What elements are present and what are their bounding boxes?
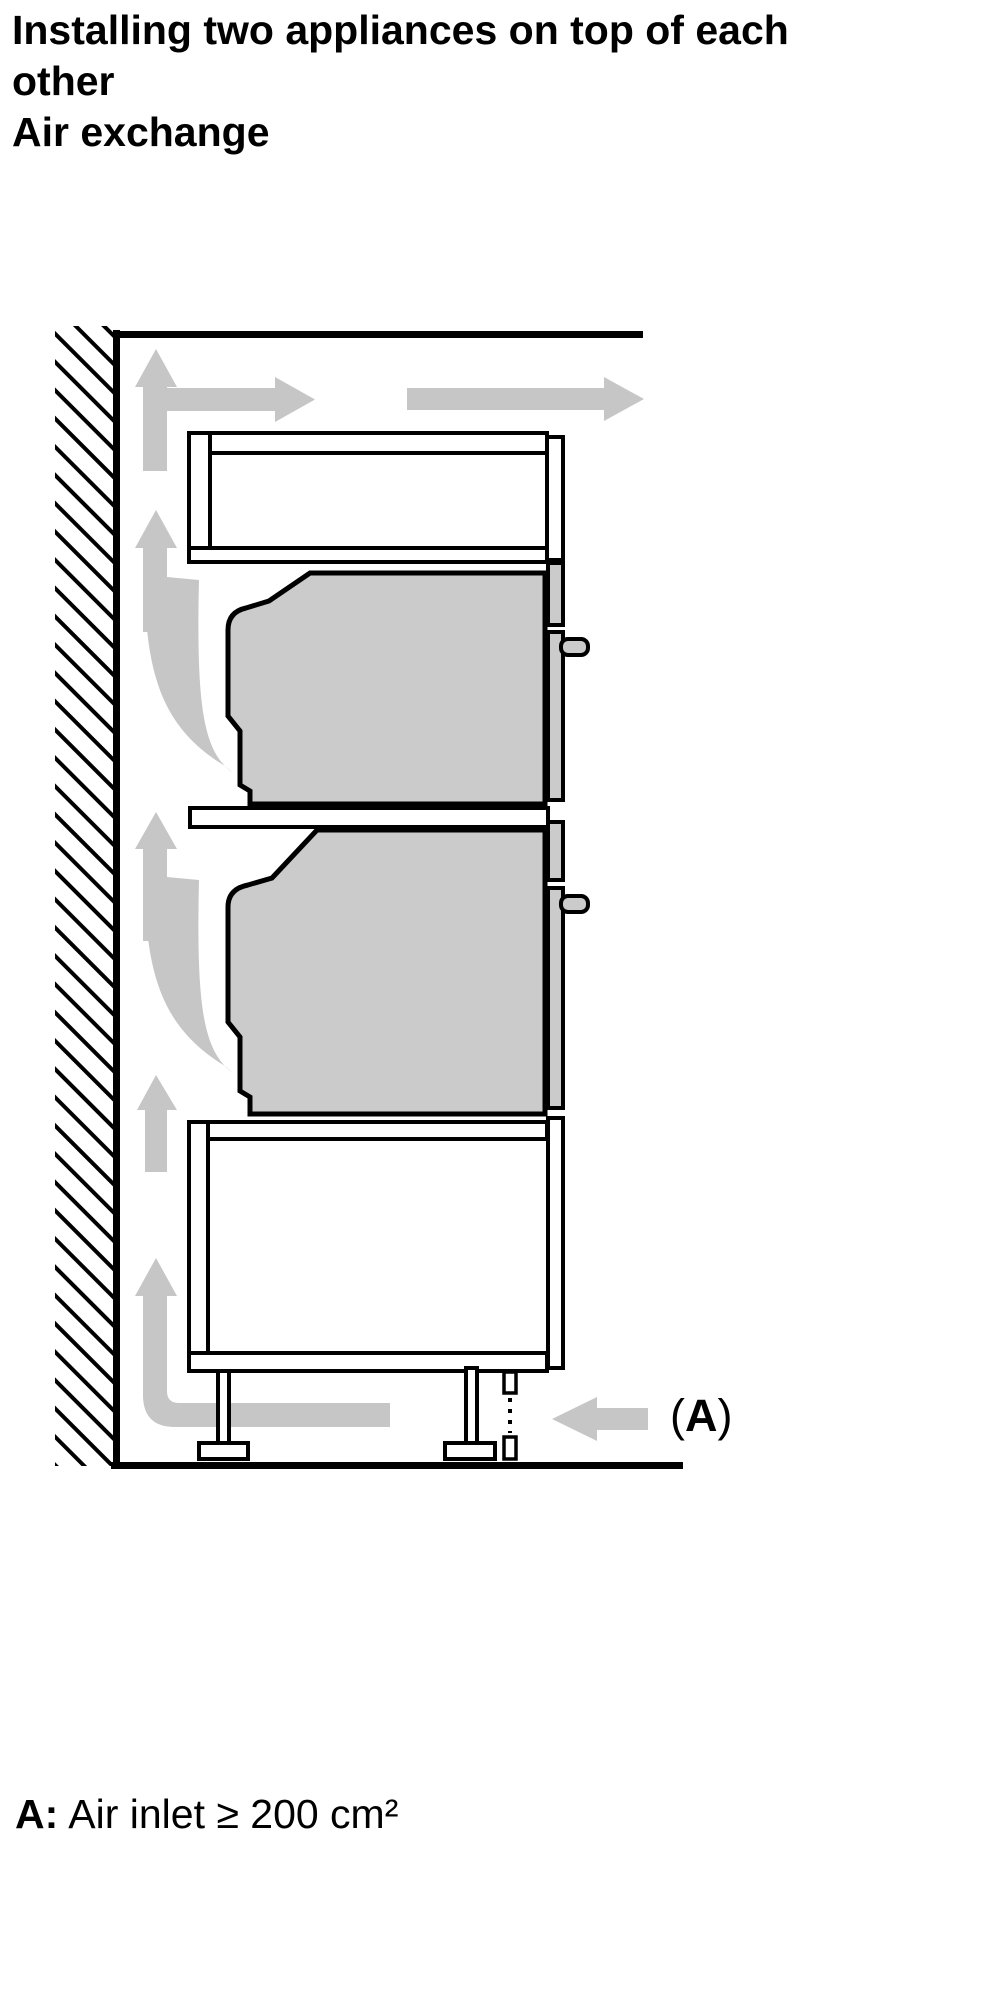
base-cabinet-top-board [189, 1122, 547, 1139]
manual-page: Installing two appliances on top of each… [0, 0, 1000, 2000]
appliance-upper [228, 563, 588, 804]
air-inlet-label: (A) [670, 1392, 733, 1440]
floor-line [111, 1462, 683, 1469]
appliance-lower [228, 822, 588, 1114]
airflow-up-arrow-lower-icon [137, 1075, 177, 1172]
top-compartment-left-board [189, 433, 210, 562]
appliance-lower-trim [548, 822, 563, 880]
airflow-floor-l-arrow-icon [135, 1258, 390, 1427]
appliance-lower-body [228, 830, 545, 1114]
air-inlet-label-open-paren: ( [670, 1390, 685, 1441]
left-foot-plate [199, 1443, 248, 1459]
wall-hatch [55, 326, 113, 1466]
ceiling-line [113, 331, 643, 338]
top-compartment-bottom-board [189, 548, 547, 562]
wall-line [113, 330, 120, 1466]
base-cabinet-right-panel [548, 1118, 563, 1368]
airflow-curve-lower-icon [145, 875, 233, 1073]
top-compartment-right-panel [547, 437, 563, 560]
installation-diagram [0, 0, 1000, 2000]
caption-text: Air inlet ≥ 200 cm² [68, 1791, 398, 1837]
plinth-vent-bottom-rect [504, 1437, 516, 1459]
top-compartment-top-board [189, 433, 547, 453]
airflow-right-branch-arrow-icon [165, 377, 315, 422]
base-cabinet-left-board [189, 1122, 208, 1371]
appliance-lower-handle [561, 896, 588, 912]
air-inlet-label-close-paren: ) [718, 1390, 733, 1441]
base-cabinet [189, 1118, 563, 1371]
top-compartment [189, 433, 563, 562]
appliance-upper-door [548, 632, 563, 800]
air-inlet-label-letter: A [685, 1390, 718, 1441]
base-cabinet-bottom-board [189, 1353, 547, 1371]
plinth-vent-top-rect [504, 1372, 516, 1393]
middle-shelf [190, 808, 548, 827]
air-inlet-arrow-icon [552, 1397, 648, 1441]
plinth-air-inlet [504, 1372, 516, 1459]
left-leg [218, 1371, 229, 1443]
right-foot-plate [445, 1443, 495, 1459]
airflow-curve-upper-icon [145, 575, 233, 773]
appliance-lower-door [548, 888, 563, 1108]
appliance-upper-body [228, 573, 545, 804]
caption-key: A: [15, 1791, 58, 1837]
airflow-right-arrow-icon [407, 377, 644, 421]
appliance-upper-handle [561, 639, 588, 655]
right-leg [466, 1368, 477, 1443]
figure-caption: A:Air inlet ≥ 200 cm² [15, 1791, 398, 1837]
appliance-upper-trim [548, 563, 563, 625]
